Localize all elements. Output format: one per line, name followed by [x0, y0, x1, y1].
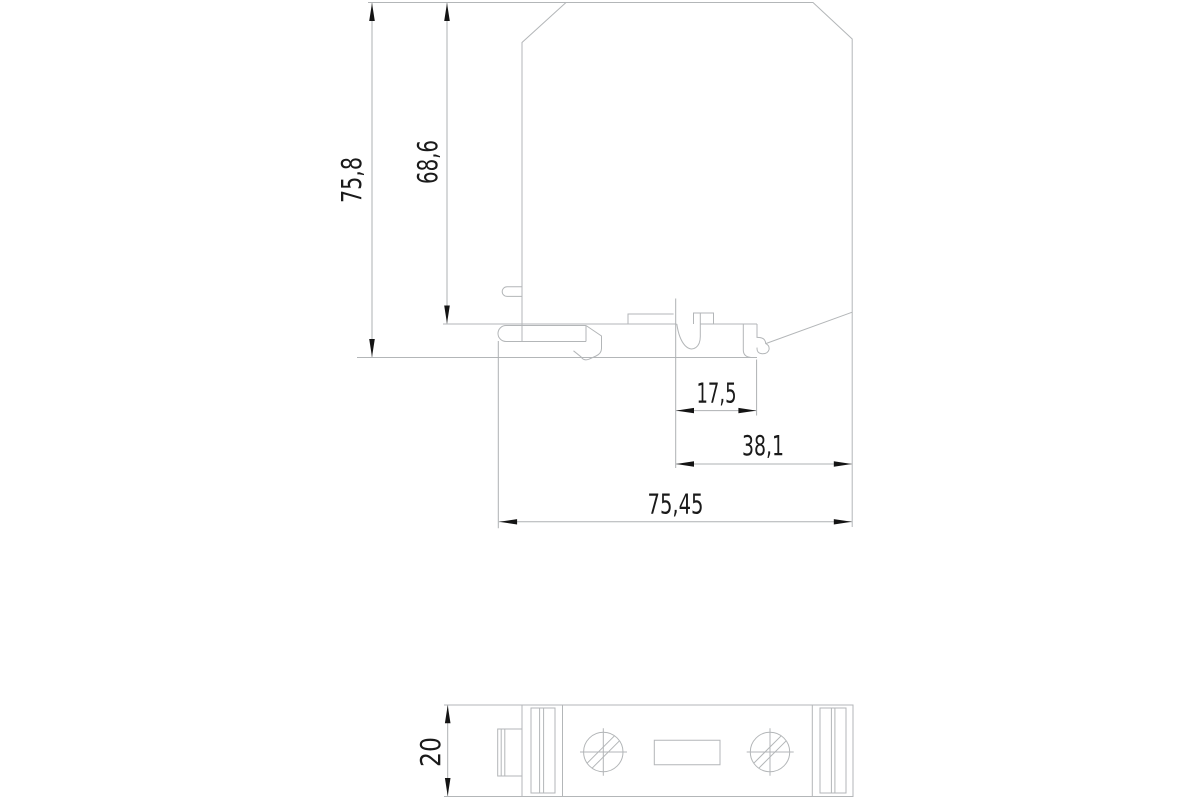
dim-arrow-right [834, 519, 852, 524]
dim-label-depth: 20 [414, 737, 447, 767]
dim-arrow-down [444, 306, 450, 324]
technical-drawing: 75,8 68,6 17,5 38,1 [0, 0, 1200, 800]
dim-arrow-up [444, 3, 450, 21]
dim-arrow-up [445, 705, 451, 723]
mounting-tab [502, 287, 522, 297]
dim-arrow-right [834, 461, 852, 466]
bottom-view-outline [444, 705, 853, 797]
dim-label-body-height: 68,6 [411, 140, 444, 184]
dim-notch-to-edge: 38,1 [676, 429, 852, 467]
dim-notch-width: 17,5 [676, 360, 757, 416]
foot-u-notch [677, 313, 701, 349]
dim-body-height: 68,6 [411, 3, 450, 325]
right-foot-hook [743, 312, 852, 357]
dim-depth: 20 [414, 705, 451, 796]
dim-arrow-right [738, 408, 756, 413]
dim-label-notch-to-edge: 38,1 [742, 429, 784, 462]
dim-label-overall-width: 75,45 [648, 488, 704, 521]
marking-window [654, 740, 720, 764]
dim-arrow-left [676, 408, 694, 413]
rail-guide-slots [531, 708, 846, 793]
dim-arrow-down [445, 778, 451, 796]
screw-terminal-right [747, 728, 794, 775]
screw-centerlines [747, 728, 794, 775]
dim-arrow-left [499, 519, 517, 524]
dim-overall-height: 75,8 [335, 3, 375, 358]
dim-arrow-up [369, 3, 375, 21]
dim-arrow-left [676, 461, 694, 466]
dim-label-notch-width: 17,5 [697, 377, 737, 410]
clip-protrusion [498, 729, 522, 776]
dim-label-overall-height: 75,8 [335, 157, 368, 203]
dim-arrow-down [369, 339, 375, 357]
rail-clip-catch [574, 326, 602, 360]
technical-drawing-page: 75,8 68,6 17,5 38,1 [0, 0, 1200, 800]
screw-terminal-left [580, 728, 627, 775]
side-view: 75,8 68,6 17,5 38,1 [335, 3, 852, 529]
screw-centerlines [580, 728, 627, 775]
dim-overall-width: 75,45 [498, 341, 852, 528]
bottom-view: 20 [414, 705, 853, 797]
rail-clip-arm [498, 326, 586, 342]
